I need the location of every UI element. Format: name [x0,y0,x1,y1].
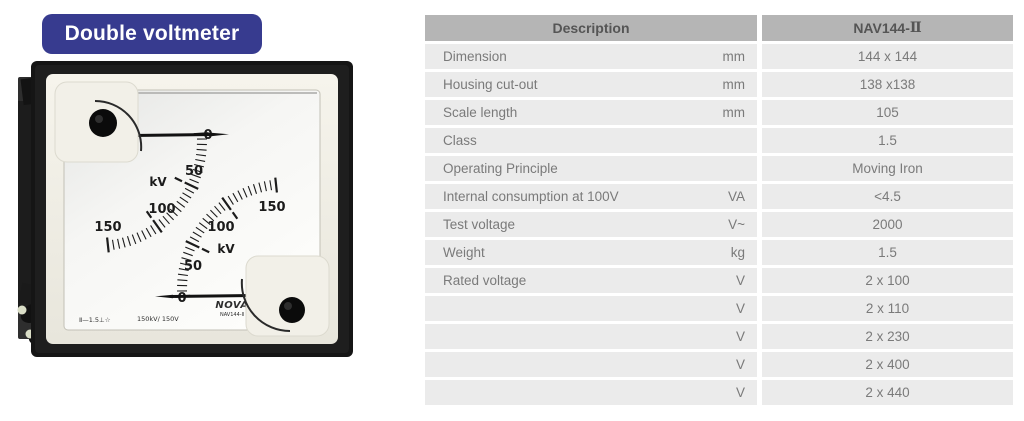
spec-unit: V [736,329,745,344]
spec-value: 2 x 100 [865,273,909,288]
page: Double voltmeter [0,0,1024,421]
header-model-suffix: Ⅱ [910,20,922,36]
spec-unit: V~ [728,217,745,232]
spec-label: Internal consumption at 100V [443,189,619,204]
header-description-label: Description [552,20,629,36]
spec-value: 1.5 [878,245,897,260]
spec-row: Weight kg 1.5 [425,240,1013,265]
spec-unit: mm [723,105,746,120]
spec-row: Operating Principle Moving Iron [425,156,1013,181]
bottom-scale-50: 50 [184,259,202,274]
spec-value: 2000 [872,217,902,232]
spec-value: Moving Iron [852,161,923,176]
top-scale-100: 100 [148,202,175,217]
spec-label: Class [443,133,477,148]
spec-unit: V [736,273,745,288]
spec-table-body: Dimension mm 144 x 144 Housing cut-out m… [425,44,1013,405]
dial-model-text: NAV144-Ⅱ [220,312,244,318]
voltmeter-graphic: 0 50 100 150 kV 0 50 100 150 kV [15,58,360,360]
top-scale-50: 50 [185,164,203,179]
spec-unit: V [736,357,745,372]
top-left-boss [55,82,141,162]
spec-row: V 2 x 440 [425,380,1013,405]
terminal-tip [18,306,27,315]
spec-value: 144 x 144 [858,49,917,64]
brand-logo: NOVA [215,300,248,311]
spec-value: 1.5 [878,133,897,148]
bottom-scale-0: 0 [177,291,186,306]
bottom-scale-unit: kV [217,242,235,256]
dial-symbols: Ⅱ—1.5⊥☆ [79,316,111,324]
spec-unit: mm [723,77,746,92]
spec-row: Class 1.5 [425,128,1013,153]
spec-row: Internal consumption at 100V VA <4.5 [425,184,1013,209]
spec-label: Housing cut-out [443,77,538,92]
spec-row: V 2 x 400 [425,352,1013,377]
spec-value: 2 x 110 [866,301,909,316]
top-scale-150: 150 [94,220,121,235]
bottom-scale-150: 150 [258,200,285,215]
spec-value: 2 x 230 [865,329,909,344]
spec-label: Weight [443,245,485,260]
spec-label: Test voltage [443,217,515,232]
spec-table: Description NAV144-Ⅱ Dimension mm 144 x … [425,15,1013,408]
spec-value: 2 x 400 [865,357,909,372]
spec-value: 138 x138 [860,77,916,92]
spec-label: Operating Principle [443,161,558,176]
spec-row: Rated voltage V 2 x 100 [425,268,1013,293]
screw [279,297,305,323]
spec-unit: V [736,301,745,316]
dial-range-text: 150kV/ 150V [137,315,179,323]
spec-unit: kg [731,245,745,260]
spec-value: <4.5 [874,189,901,204]
header-model-cell: NAV144-Ⅱ [762,15,1013,41]
spec-row: V 2 x 110 [425,296,1013,321]
spec-row: Dimension mm 144 x 144 [425,44,1013,69]
spec-row: V 2 x 230 [425,324,1013,349]
voltmeter-product-image: 0 50 100 150 kV 0 50 100 150 kV [15,58,360,360]
bottom-right-boss [242,256,329,336]
spec-unit: VA [728,189,745,204]
spec-row: Test voltage V~ 2000 [425,212,1013,237]
header-model-label: NAV144- [853,20,910,36]
spec-label: Scale length [443,105,517,120]
spec-value: 105 [876,105,899,120]
product-title: Double voltmeter [65,22,240,46]
header-description-cell: Description [425,15,757,41]
top-scale-unit: kV [149,175,167,189]
product-title-badge: Double voltmeter [42,14,262,54]
spec-unit: mm [723,49,746,64]
spec-row: Scale length mm 105 [425,100,1013,125]
spec-label: Dimension [443,49,507,64]
spec-unit: V [736,385,745,400]
spec-row: Housing cut-out mm 138 x138 [425,72,1013,97]
bottom-scale-100: 100 [207,220,234,235]
spec-label: Rated voltage [443,273,526,288]
screw [89,109,117,137]
spec-table-header: Description NAV144-Ⅱ [425,15,1013,41]
spec-value: 2 x 440 [865,385,909,400]
